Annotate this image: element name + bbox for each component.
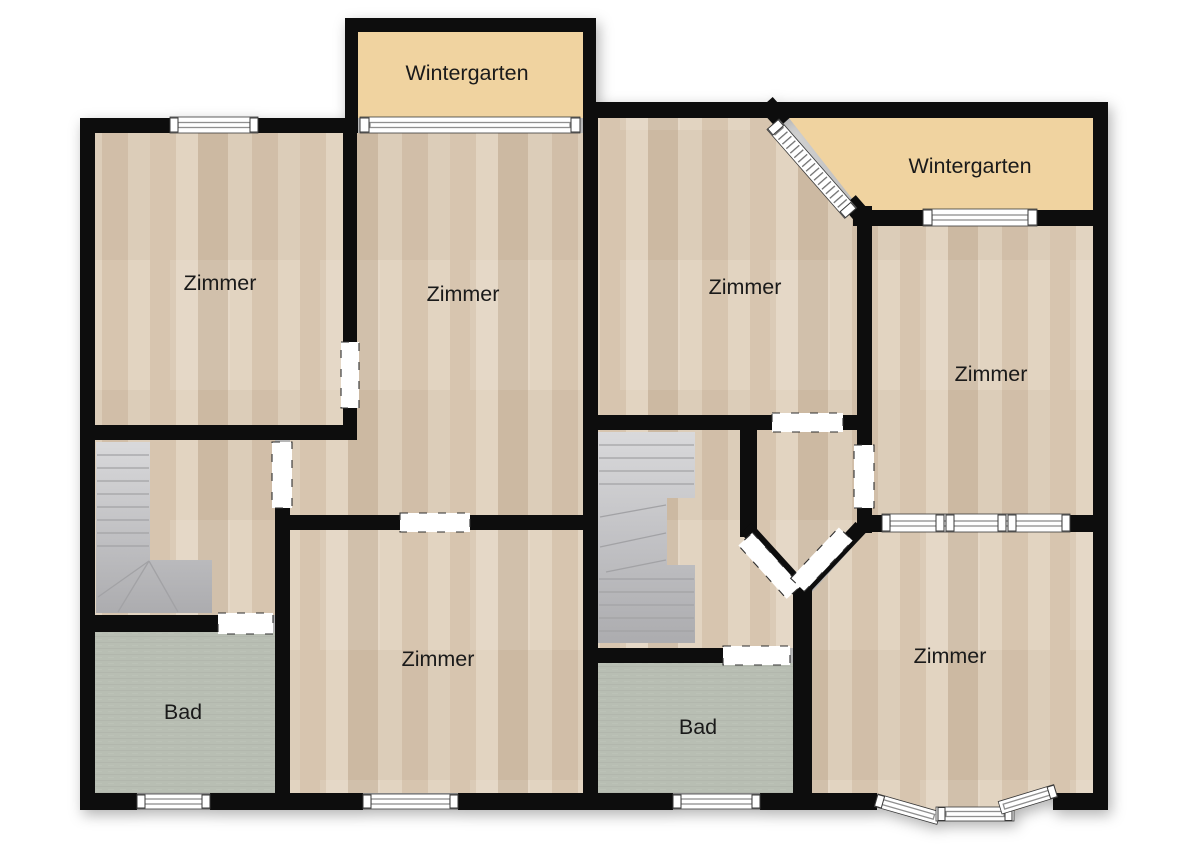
wall-zimmer1-bottom xyxy=(80,425,357,440)
window-cap xyxy=(923,210,932,225)
wall-zimmer-top-middle-bottom xyxy=(583,415,772,430)
wall-outer-top-right xyxy=(583,102,1108,118)
wall-outer-right xyxy=(1093,102,1108,810)
room-label-zimmer-bottom-middle: Zimmer xyxy=(402,647,475,671)
room-label-bad-left: Bad xyxy=(164,700,202,724)
wall-outer-left xyxy=(80,118,95,810)
door-bad-left xyxy=(218,613,273,634)
room-label-zimmer-center: Zimmer xyxy=(427,282,500,306)
wall-zimmer-right-bottom xyxy=(1070,515,1108,532)
wall-wintergarten-top-left xyxy=(345,18,358,133)
floor-plan-page: Wintergarten Wintergarten Zimmer Zimmer … xyxy=(0,0,1200,848)
wall-zimmer1-zimmer2 xyxy=(343,118,357,342)
wall-zimmer-right-left xyxy=(857,212,872,445)
wall-zimmer-bottom-right-left xyxy=(793,587,812,793)
wall-outer-bottom xyxy=(760,793,877,810)
window-cap xyxy=(938,808,945,821)
wall-wintergarten-top xyxy=(345,18,596,32)
window-cap xyxy=(1008,515,1016,531)
wall-bad-left-top xyxy=(80,615,218,632)
wall-wintergarten-right-bottom xyxy=(1037,210,1093,226)
wall-outer-bottom xyxy=(80,793,137,810)
window-cap xyxy=(571,118,580,132)
window-cap xyxy=(936,515,944,531)
wall-outer-bottom xyxy=(458,793,673,810)
wall-zimmer-bottom-middle-top xyxy=(470,515,598,530)
wall-central-spine xyxy=(583,118,598,810)
window-cap xyxy=(1028,210,1037,225)
window-cap xyxy=(170,118,178,132)
door-zimmer2-zimmer-bottom xyxy=(400,513,470,532)
window xyxy=(923,209,1037,226)
room-label-wintergarten-right: Wintergarten xyxy=(908,154,1031,178)
door-bad-middle xyxy=(723,646,790,665)
door-corridor-zimmer2 xyxy=(272,442,292,508)
window-cap xyxy=(946,515,954,531)
door-zimmer-right xyxy=(854,445,874,508)
wall-corridor-left xyxy=(275,508,290,810)
window-cap xyxy=(250,118,258,132)
window-cap xyxy=(360,118,369,132)
wall-zimmer-bottom-middle-top xyxy=(282,515,400,530)
room-label-zimmer-top-left: Zimmer xyxy=(184,271,257,295)
wall-bad-middle-top xyxy=(583,648,723,663)
room-label-bad-middle: Bad xyxy=(679,715,717,739)
room-label-zimmer-top-middle: Zimmer xyxy=(709,275,782,299)
window-cap xyxy=(673,795,681,808)
floor-plan: Wintergarten Wintergarten Zimmer Zimmer … xyxy=(0,0,1200,848)
window xyxy=(360,117,580,133)
room-floor-zimmer-top-middle xyxy=(598,118,857,415)
window-cap xyxy=(998,515,1006,531)
window-cap xyxy=(752,795,760,808)
window xyxy=(170,117,258,133)
room-label-zimmer-right: Zimmer xyxy=(955,362,1028,386)
window-cap xyxy=(363,795,371,808)
window xyxy=(882,514,1070,532)
window-cap xyxy=(202,795,210,808)
wall-outer-bottom xyxy=(1053,793,1108,810)
door-zimmer-top-middle xyxy=(772,413,843,432)
wall-vestibule-left xyxy=(740,430,757,537)
window xyxy=(137,794,210,809)
window xyxy=(673,794,760,809)
room-label-zimmer-bottom-right: Zimmer xyxy=(914,644,987,668)
window-cap xyxy=(1062,515,1070,531)
room-label-wintergarten-top: Wintergarten xyxy=(405,61,528,85)
plan-content: Wintergarten Wintergarten Zimmer Zimmer … xyxy=(80,18,1108,824)
window xyxy=(363,794,458,809)
door-zimmer1-zimmer2 xyxy=(341,342,359,408)
window-cap xyxy=(137,795,145,808)
window-cap xyxy=(450,795,458,808)
window-cap xyxy=(882,515,890,531)
wall-zimmer-right-bottom xyxy=(870,515,882,532)
